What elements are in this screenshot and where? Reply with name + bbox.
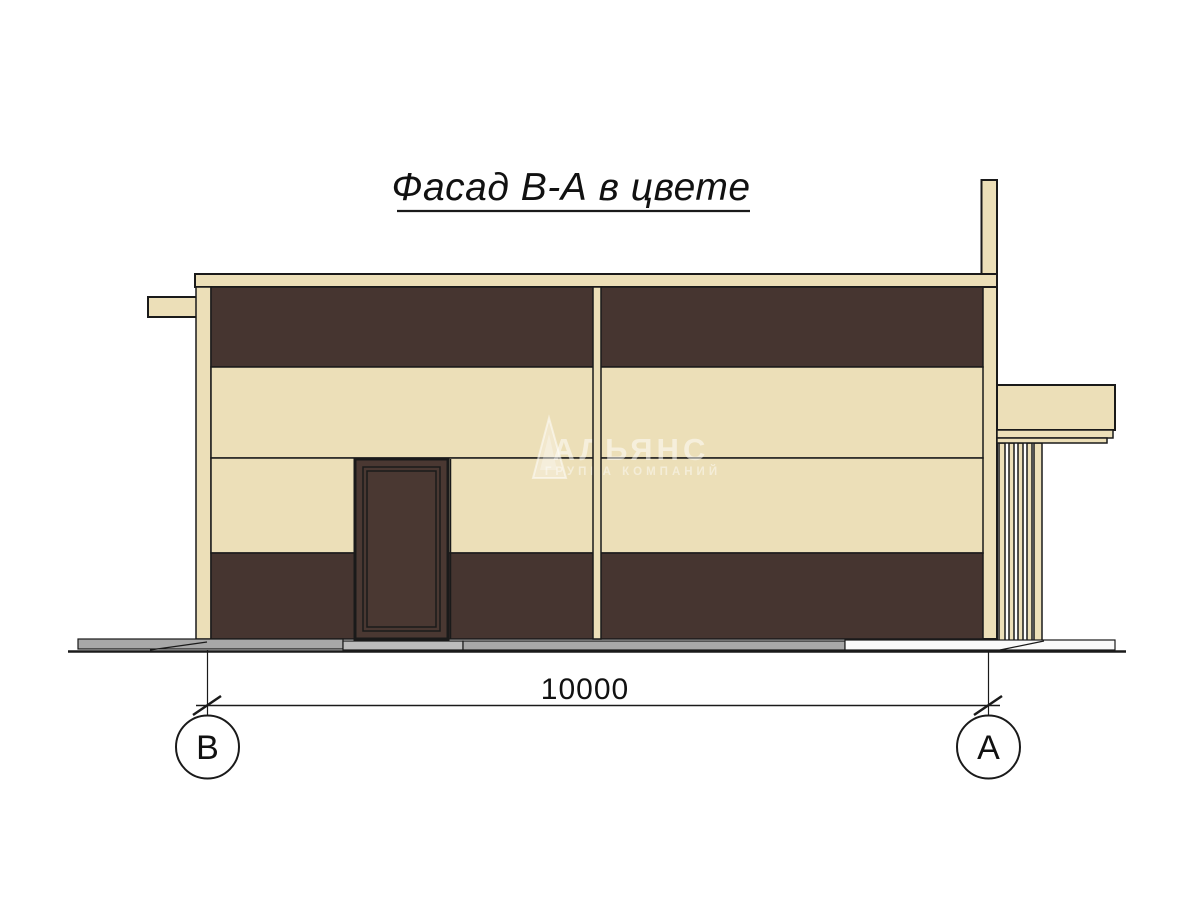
canopy-slat <box>1027 443 1032 641</box>
wall-beam-left <box>148 297 198 317</box>
watermark-subtitle: ГРУППА КОМПАНИЙ <box>545 465 721 478</box>
watermark-name: АЛЬЯНС <box>553 432 710 467</box>
drawing-title: Фасад В-А в цвете <box>391 166 750 209</box>
pavement-strip-mid <box>463 641 845 650</box>
entrance-door <box>355 459 448 639</box>
canopy-slat <box>1009 443 1014 641</box>
facade-fascia <box>195 274 997 287</box>
pavement-strip-right <box>845 640 1115 650</box>
canopy-slat <box>999 443 1005 641</box>
dimension-annotation: 10000 В А <box>176 650 1020 779</box>
grid-label-a: А <box>977 729 1000 767</box>
canopy-fascia-strip <box>997 430 1113 438</box>
pavement-strip-left <box>78 639 343 649</box>
grid-label-b: В <box>196 729 219 767</box>
dimension-label: 10000 <box>541 673 629 706</box>
panel-divider <box>593 287 601 639</box>
roof-post-right <box>982 180 998 639</box>
canopy-slat <box>1034 443 1042 641</box>
canopy-fascia-strip <box>997 438 1107 443</box>
facade-drawing-sheet: Фасад В-А в цвете АЛЬЯНС ГРУППА КОМПАНИЙ <box>0 0 1200 900</box>
facade-elevation-svg: Фасад В-А в цвете АЛЬЯНС ГРУППА КОМПАНИЙ <box>0 0 1200 900</box>
canopy-slat <box>1018 443 1023 641</box>
ground <box>68 639 1126 652</box>
corner-column-left <box>196 287 211 639</box>
pavement-threshold <box>343 641 463 650</box>
canopy-slab <box>997 385 1115 430</box>
canopy <box>997 385 1115 641</box>
